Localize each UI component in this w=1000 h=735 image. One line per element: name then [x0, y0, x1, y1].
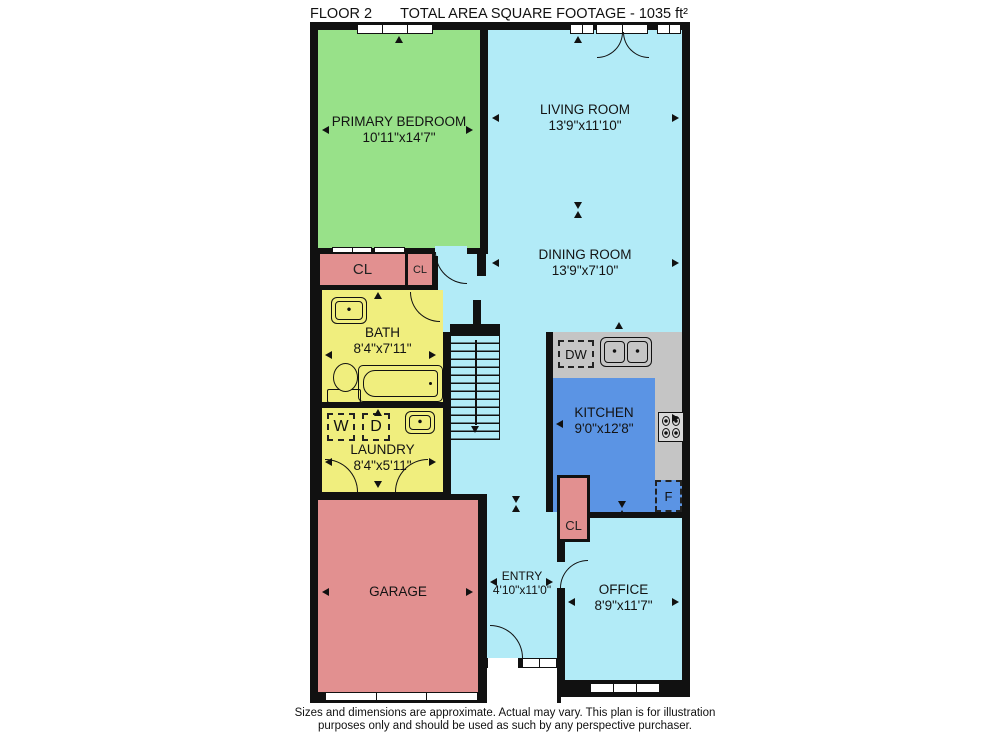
doorway-entry [488, 658, 518, 668]
wall-kitchen-left [546, 378, 553, 512]
kitchen-counter-right [655, 332, 682, 480]
wall-stub [473, 300, 481, 326]
garage-door-icon [325, 692, 478, 701]
sink-icon [405, 411, 435, 434]
dimension-arrow [466, 588, 473, 596]
dimension-arrow [429, 458, 436, 466]
window-icon [590, 683, 660, 693]
fridge-label: F [665, 489, 673, 504]
total-area-label: TOTAL AREA SQUARE FOOTAGE - 1035 ft² [400, 6, 688, 22]
dryer-box: D [362, 413, 390, 441]
dimension-arrow [374, 481, 382, 488]
window-icon [522, 658, 557, 668]
closet-label: CL [565, 518, 582, 533]
dimension-arrow [615, 322, 623, 329]
toilet-icon [333, 363, 358, 392]
sink-icon [331, 297, 367, 324]
porch-notch [487, 668, 557, 703]
closet-door-icon [332, 247, 372, 253]
dimension-arrow [492, 114, 499, 122]
dryer-label: D [370, 418, 382, 436]
room-dims: 10'11"x14'7" [318, 130, 480, 146]
dimension-arrow [568, 598, 575, 606]
floor-plan: CL CL CL W D DW F PRIMARY BEDROOM [310, 22, 690, 703]
dimension-arrow [374, 409, 382, 416]
room-living-dining [488, 30, 682, 332]
double-sink-icon [600, 337, 652, 367]
dimension-arrow [492, 259, 499, 267]
dishwasher-box: DW [558, 340, 594, 368]
room-name: DINING ROOM [488, 247, 682, 263]
dimension-arrow [556, 420, 563, 428]
stairs-icon [450, 335, 500, 440]
dimension-arrow [429, 351, 436, 359]
dimension-arrow [325, 351, 332, 359]
dimension-arrow [546, 578, 553, 586]
fridge-box: F [655, 480, 682, 512]
dimension-arrow [672, 259, 679, 267]
disclaimer-text: Sizes and dimensions are approximate. Ac… [285, 707, 725, 733]
room-name: KITCHEN [553, 405, 655, 421]
window-icon [357, 24, 433, 34]
dimension-arrow [512, 505, 520, 512]
dimension-arrow [395, 36, 403, 43]
closet-hall: CL [408, 254, 432, 285]
garage-label: GARAGE [318, 584, 478, 600]
bath-label: BATH 8'4"x7'11" [322, 325, 443, 357]
room-name: GARAGE [318, 584, 478, 600]
stairs-arrow-icon [471, 426, 479, 433]
closet-label: CL [413, 264, 427, 276]
dimension-arrow [374, 292, 382, 299]
wall-stub [477, 248, 486, 276]
bathtub-icon [358, 365, 443, 402]
room-name: BATH [322, 325, 443, 341]
dimension-arrow [574, 211, 582, 218]
room-dims: 8'4"x7'11" [322, 341, 443, 357]
stove-icon [658, 412, 684, 442]
bottom-notch [561, 697, 690, 703]
living-room-label: LIVING ROOM 13'9"x11'10" [488, 102, 682, 134]
window-icon [570, 24, 594, 34]
dimension-arrow [672, 598, 679, 606]
wall-stub [450, 324, 500, 335]
closet-label: CL [353, 261, 372, 278]
washer-box: W [327, 413, 355, 441]
dishwasher-label: DW [565, 347, 587, 362]
primary-bedroom-label: PRIMARY BEDROOM 10'11"x14'7" [318, 114, 480, 146]
dimension-arrow [574, 202, 582, 209]
dimension-arrow [672, 414, 679, 422]
room-dims: 8'9"x11'7" [565, 598, 682, 614]
room-name: LIVING ROOM [488, 102, 682, 118]
dimension-arrow [574, 36, 582, 43]
dimension-arrow [490, 578, 497, 586]
closet-entry: CL [557, 475, 590, 542]
room-dims: 13'9"x11'10" [488, 118, 682, 134]
dimension-arrow [672, 114, 679, 122]
dimension-arrow [618, 510, 626, 517]
floor-title: FLOOR 2 [310, 6, 372, 22]
window-icon [657, 24, 681, 34]
room-dims: 13'9"x7'10" [488, 263, 682, 279]
washer-label: W [333, 418, 348, 436]
dimension-arrow [325, 458, 332, 466]
room-dims: 9'0"x12'8" [553, 421, 655, 437]
dimension-arrow [322, 126, 329, 134]
closet-bedroom: CL [320, 254, 405, 285]
kitchen-label: KITCHEN 9'0"x12'8" [553, 405, 655, 437]
dimension-arrow [466, 126, 473, 134]
dining-room-label: DINING ROOM 13'9"x7'10" [488, 247, 682, 279]
laundry-label: LAUNDRY 8'4"x5'11" [322, 442, 443, 474]
room-name: LAUNDRY [322, 442, 443, 458]
closet-door-icon [374, 247, 405, 253]
dimension-arrow [618, 501, 626, 508]
room-dims: 8'4"x5'11" [322, 458, 443, 474]
dimension-arrow [512, 496, 520, 503]
dimension-arrow [322, 588, 329, 596]
room-name: PRIMARY BEDROOM [318, 114, 480, 130]
